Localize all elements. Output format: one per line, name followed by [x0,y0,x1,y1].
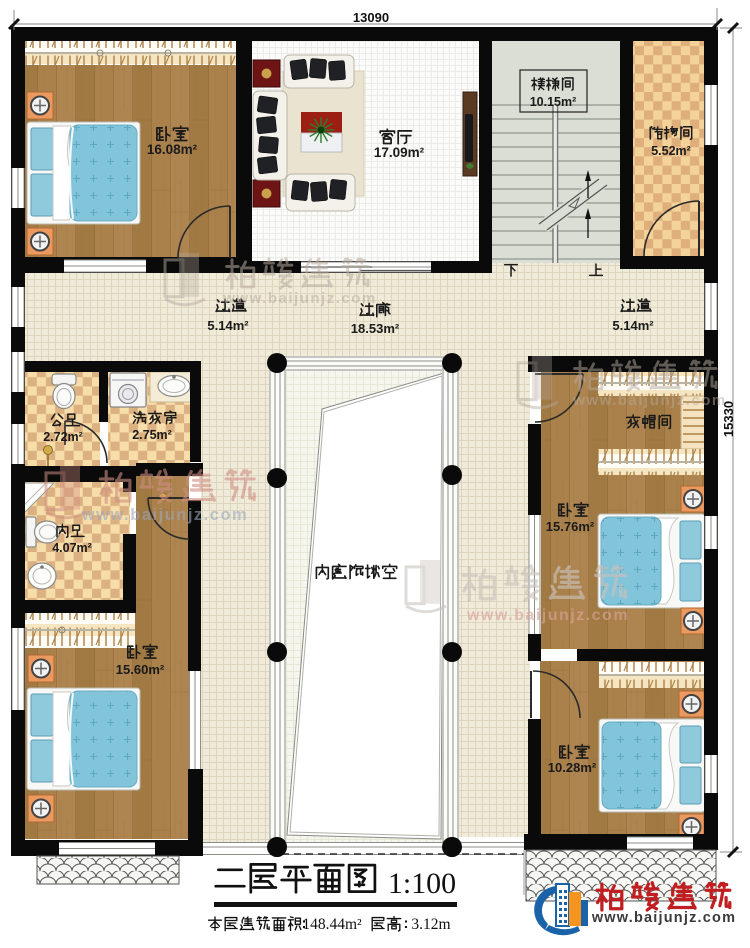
svg-text:1:100: 1:100 [388,867,456,900]
svg-text:www.baijunjz.com: www.baijunjz.com [591,910,736,926]
svg-text:15.76m²: 15.76m² [546,519,595,534]
svg-text:2.72m²: 2.72m² [43,430,83,444]
svg-text:5.14m²: 5.14m² [207,318,249,333]
svg-text:18.53m²: 18.53m² [351,321,400,336]
svg-text:www.baijunjz.com: www.baijunjz.com [81,506,248,524]
svg-text:5.52m²: 5.52m² [651,144,691,158]
svg-text::: : [404,915,409,932]
svg-text:148.44m²: 148.44m² [302,916,362,933]
svg-text:13090: 13090 [353,10,389,25]
svg-text:2.75m²: 2.75m² [132,428,172,442]
svg-text:4.07m²: 4.07m² [52,541,92,555]
svg-text:10.28m²: 10.28m² [548,760,597,775]
svg-text:www.baijunjz.com: www.baijunjz.com [572,392,726,409]
svg-text:10.15m²: 10.15m² [530,95,577,109]
svg-text:16.08m²: 16.08m² [147,142,198,157]
svg-text:www.baijunjz.com: www.baijunjz.com [222,290,376,307]
svg-text:5.14m²: 5.14m² [612,318,654,333]
svg-text:3.12m: 3.12m [411,916,450,933]
svg-text:15.60m²: 15.60m² [116,662,165,677]
svg-text:www.baijunjz.com: www.baijunjz.com [466,607,629,624]
svg-text:17.09m²: 17.09m² [374,145,425,160]
